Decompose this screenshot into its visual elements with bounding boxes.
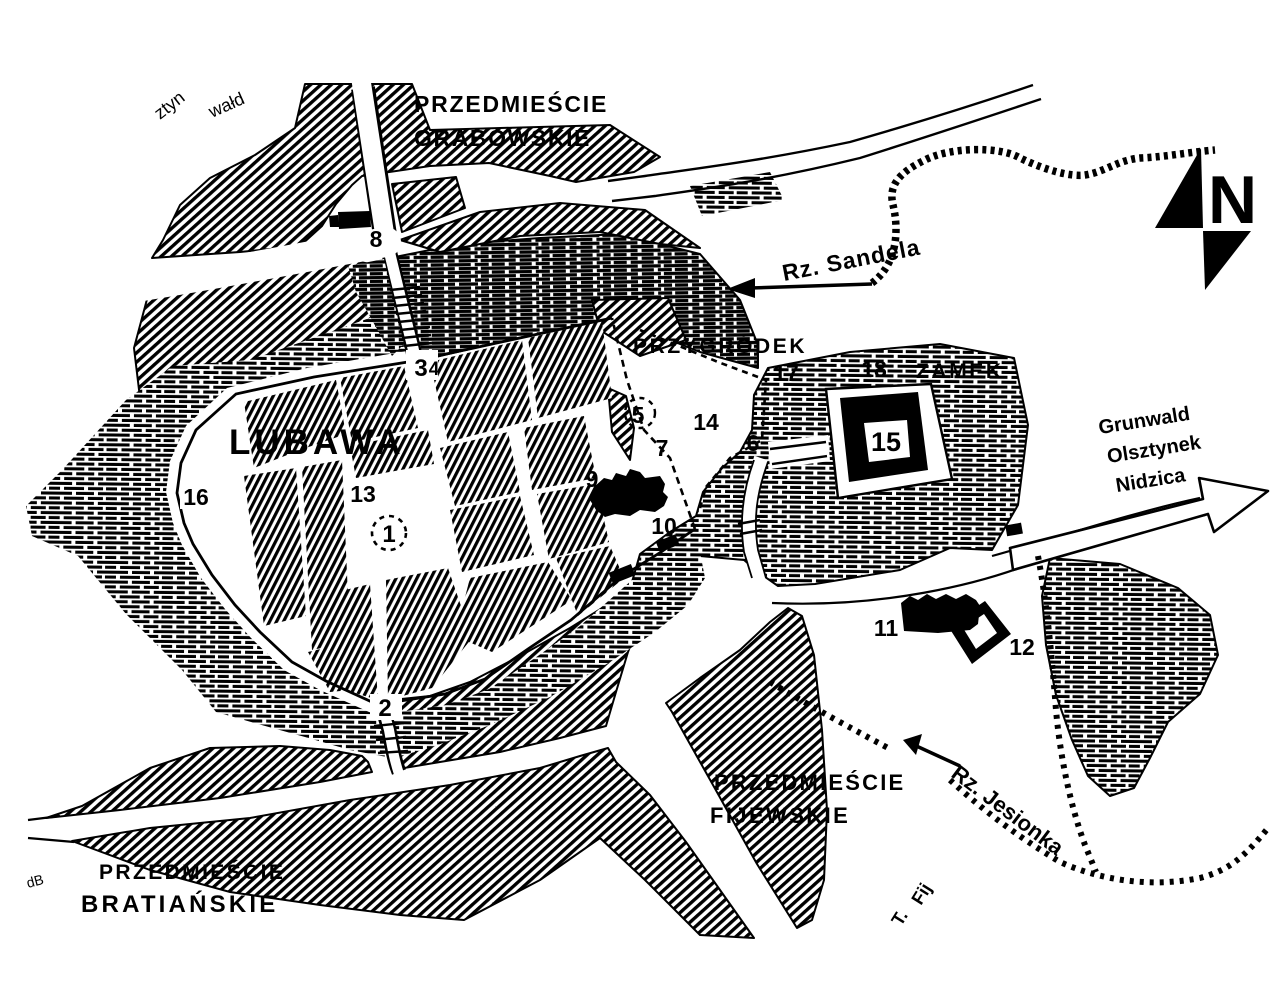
svg-text:PRZYGRÓDEK: PRZYGRÓDEK	[633, 334, 807, 358]
svg-text:N: N	[1208, 162, 1257, 238]
svg-text:14: 14	[693, 409, 719, 435]
svg-text:17: 17	[773, 360, 799, 386]
svg-text:8: 8	[370, 226, 383, 252]
svg-text:12: 12	[1009, 634, 1035, 660]
svg-text:LUBAWA: LUBAWA	[229, 423, 405, 462]
svg-text:PRZEDMIEŚCIE: PRZEDMIEŚCIE	[414, 90, 608, 117]
svg-text:9: 9	[586, 466, 599, 492]
svg-text:2: 2	[378, 695, 391, 722]
svg-text:13: 13	[350, 481, 376, 507]
svg-text:PRZEDMIEŚCIE: PRZEDMIEŚCIE	[714, 770, 905, 795]
svg-text:PRZEDMIEŚCIE: PRZEDMIEŚCIE	[99, 860, 285, 884]
svg-text:5: 5	[632, 402, 645, 428]
svg-text:6: 6	[747, 430, 760, 456]
svg-text:15: 15	[871, 427, 901, 457]
svg-text:16: 16	[183, 484, 209, 510]
svg-text:18: 18	[861, 356, 887, 382]
svg-text:7: 7	[656, 435, 669, 461]
svg-text:4: 4	[429, 359, 440, 380]
svg-text:ZAMEK: ZAMEK	[916, 360, 1004, 383]
svg-text:BRATIAŃSKIE: BRATIAŃSKIE	[81, 890, 278, 918]
svg-text:11: 11	[874, 615, 899, 641]
svg-text:FIJEWSKIE: FIJEWSKIE	[710, 803, 850, 828]
svg-text:3: 3	[414, 355, 427, 382]
svg-text:GRABOWSKIE: GRABOWSKIE	[414, 125, 591, 151]
svg-text:1: 1	[382, 521, 395, 548]
svg-text:10: 10	[651, 513, 677, 539]
